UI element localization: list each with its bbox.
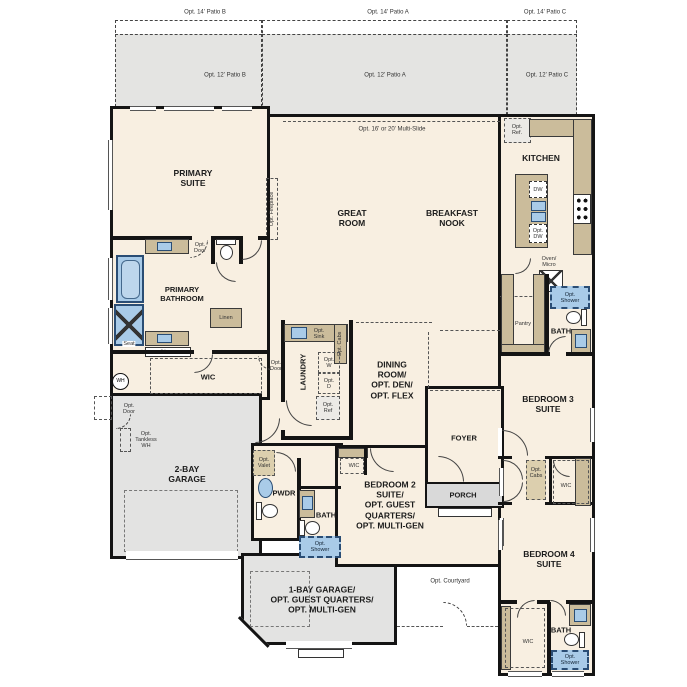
porch-step [438,508,492,517]
multi-slide-door [283,114,500,117]
dining-label: DINING ROOM/ OPT. DEN/ OPT. FLEX [371,360,414,401]
great-room-label: GREAT ROOM [337,208,366,228]
sink [302,496,313,510]
toilet [566,311,581,324]
patio-14c-label: Opt. 14' Patio C [524,10,566,17]
opt-dishwasher-label: Opt. DW [533,228,543,240]
wic-primary-label: WIC [201,373,216,382]
patio-12a-label: Opt. 12' Patio A [364,73,406,80]
wall [545,274,549,356]
wic-bed2-label: WIC [349,463,360,469]
wic-bed4-label: WIC [523,639,534,645]
bedroom4-label: BEDROOM 4 SUITE [523,549,574,569]
garage-step [298,649,344,658]
wall [281,436,353,440]
wic-bed3-label: WIC [561,483,572,489]
bath3-label: BATH [551,327,571,336]
foyer-label: FOYER [451,434,477,443]
opt-fireplace-label: Opt. Fireplace [269,192,275,227]
seat-label: Seat [122,341,135,347]
opt-fridge-label: Opt. Ref. [512,124,522,136]
opt-door-stub [94,396,112,420]
window [590,408,595,442]
wall [498,456,512,459]
toilet [564,633,579,646]
window [130,106,156,111]
wall [212,350,270,354]
primary-suite-label: PRIMARY SUITE [174,168,213,188]
wall [211,236,215,264]
breakfast-nook-label: BREAKFAST NOOK [426,208,478,228]
window [590,518,595,552]
island-sink [531,201,546,211]
wall [349,320,353,440]
multi-slide-track [283,121,500,122]
garage-door [126,551,238,560]
porch-label: PORCH [449,491,476,500]
sink [157,242,172,251]
window [108,140,113,210]
sink [575,334,587,348]
opt-shower-bath3-label: Opt. Shower [561,292,580,304]
opt-cabs-hall-label: Opt. Cabs [530,467,543,479]
window [498,520,503,550]
parking-outline [250,571,310,627]
sink [157,334,172,343]
window [508,671,542,677]
window [108,258,113,300]
laundry-sink [291,327,307,339]
pantry-wall [533,274,545,354]
wall [498,600,517,604]
pantry-label: Pantry [515,321,531,327]
toilet [262,504,278,518]
kitchen-label: KITCHEN [522,153,560,163]
courtyard-fence [467,626,498,627]
toilet-tank [581,309,587,326]
courtyard-gate-arc [443,602,467,626]
window [164,106,214,111]
opt-washer-label: Opt. W [324,357,334,369]
multi-slide-label: Opt. 16' or 20' Multi-Slide [359,127,426,134]
toilet [220,245,233,260]
tub-basin [121,260,140,299]
opt-sink-label: Opt. Sink [314,328,325,340]
laundry-label: LAUNDRY [299,354,308,390]
wall [110,350,194,354]
garage-door [286,641,352,649]
wall [498,352,550,356]
pantry-wall [501,274,514,354]
cooktop [573,194,591,224]
bath-bed2-label: BATH [316,511,336,520]
patio-14a-label: Opt. 14' Patio A [367,10,409,17]
garage-2bay-label: 2-BAY GARAGE [168,464,205,484]
primary-bathroom-label: PRIMARY BATHROOM [160,285,204,303]
bedroom3-label: BEDROOM 3 SUITE [522,394,573,414]
toilet-tank [579,632,585,648]
opt-shower-bath4-label: Opt. Shower [561,654,580,666]
patio-12b-label: Opt. 12' Patio B [204,73,246,80]
wall [566,352,595,356]
opt-tankless-label: Opt. Tankless WH [135,431,156,449]
patio-14b-label: Opt. 14' Patio B [184,10,226,17]
wall [498,502,512,505]
patio-12c-label2: Opt. 12' Patio C [526,73,568,80]
pwdr-sink [258,478,273,498]
bedroom2-label: BEDROOM 2 SUITE/ OPT. GUEST QUARTERS/ OP… [356,480,424,531]
parking-outline [124,490,238,552]
toilet [305,521,320,535]
island-sink [531,212,546,222]
floor-plan: Opt. 14' Patio B Opt. 14' Patio A Opt. 1… [0,0,687,687]
wall [364,445,367,475]
water-heater: WH [112,373,129,390]
opt-valet-label: Opt. Valet [258,457,270,469]
courtyard-fence [397,626,443,627]
kitchen-counter-right [573,119,592,255]
cased-opening [428,332,429,388]
cased-opening [440,330,500,331]
linen-label: Linen [219,315,232,321]
sink [574,609,587,622]
opt-tankless-wh-box [120,428,131,452]
opt-shower-bed2-label: Opt. Shower [311,541,330,553]
window [552,671,584,677]
cased-opening [430,390,500,391]
pwdr-label: PWDR [273,489,296,498]
opt-fridge-laundry-label: Opt. Ref [323,402,333,414]
wall [549,456,552,505]
oven-micro-label: Oven/ Micro [542,256,557,268]
opt-dryer-label: Opt. D [324,378,334,390]
wall [297,486,341,489]
dishwasher-label: DW [533,187,542,193]
shower [114,304,144,346]
opt-door-bath-label: Opt. Door [194,242,206,254]
opt-courtyard-label: Opt. Courtyard [430,579,469,586]
window [222,106,252,111]
cased-opening [356,322,432,323]
window [108,308,113,344]
